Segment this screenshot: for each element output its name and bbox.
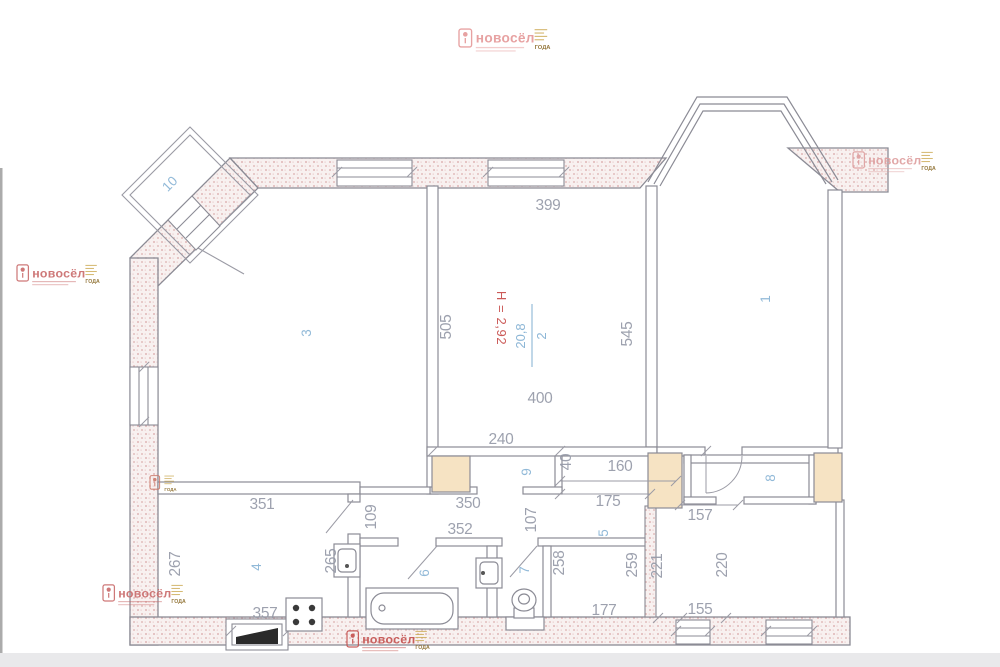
badge-goda-label: ГОДА (535, 45, 552, 51)
award-badge: ГОДА (535, 29, 552, 51)
bay-window-glazing (648, 97, 838, 186)
logo-dot (351, 634, 355, 638)
watermark-tagline-line (118, 601, 162, 602)
dimension-label: 258 (551, 551, 568, 576)
watermark-tagline-line (868, 168, 912, 169)
dimension-label: 545 (619, 322, 636, 347)
dimension-label: 265 (323, 549, 340, 574)
novosel-logo-icon (103, 585, 114, 601)
dimension-label: 175 (596, 493, 621, 510)
dimension-label: 157 (688, 507, 713, 524)
watermark-tagline-line (476, 47, 524, 48)
badge-line (171, 585, 182, 586)
badge-line (921, 155, 930, 156)
badge-goda-label: ГОДА (85, 279, 100, 285)
room-number-label: 8 (763, 474, 778, 482)
washbasin-icon (476, 558, 502, 588)
room2-area-fraction: 20,8 2 (513, 304, 549, 367)
logo-dot (107, 588, 111, 592)
interior-walls (158, 186, 844, 617)
badge-line (535, 29, 548, 30)
room-number-label: 3 (299, 329, 314, 337)
dimension-label: 160 (608, 458, 634, 475)
dimension-label: 107 (523, 508, 540, 533)
dimension-label: 109 (363, 505, 380, 530)
badge-line (164, 478, 171, 479)
room-number-label: 9 (519, 468, 534, 476)
badge-line (535, 39, 544, 40)
watermark: новосёлГОДА (103, 585, 186, 605)
award-badge: ГОДА (921, 152, 936, 172)
badge-line (415, 634, 424, 635)
logo-dot (21, 268, 25, 272)
windows (130, 160, 812, 650)
watermark-brand: новосёл (362, 632, 415, 646)
badge-goda-label: ГОДА (171, 599, 186, 605)
logo-dot (153, 478, 157, 482)
room-number-label: 1 (758, 295, 773, 303)
dimension-label: 352 (448, 521, 473, 538)
room-number-label: 6 (417, 569, 432, 577)
novosel-logo-icon (17, 265, 28, 281)
toilet-icon (506, 589, 544, 630)
watermark-brand: новосёл (476, 31, 535, 46)
badge-line (921, 152, 932, 153)
dimension-label: 267 (167, 552, 184, 577)
badge-goda-label: ГОДА (164, 487, 177, 492)
badge-line (535, 36, 548, 37)
badge-line (85, 271, 96, 272)
logo-dot (857, 155, 861, 159)
watermark-tagline-line (476, 50, 516, 51)
badge-line (164, 483, 171, 484)
dimension-label: 221 (649, 554, 666, 579)
watermark-tagline-line (868, 171, 904, 172)
logo-shield (17, 265, 28, 281)
badge-line (415, 631, 426, 632)
room-number-label: 10 (159, 173, 180, 194)
scan-footer-strip (0, 653, 1000, 667)
watermark-tagline-line (32, 284, 68, 285)
room2-number: 2 (534, 332, 549, 339)
badge-line (171, 591, 182, 592)
logo-dot (463, 32, 468, 37)
watermark-tagline-line (362, 647, 406, 648)
watermark-tagline-line (362, 650, 398, 651)
room-number-label: 7 (517, 566, 532, 574)
scan-left-edge (0, 168, 3, 655)
badge-line (85, 268, 94, 269)
badge-line (171, 594, 180, 595)
room-number-label: 5 (596, 529, 611, 537)
dimension-label: 220 (714, 552, 731, 578)
badge-line (171, 588, 180, 589)
watermark: новосёлГОДА (17, 265, 100, 285)
room-number-labels: 1345678910 (159, 173, 778, 577)
ceiling-height-label: Н = 2,92 (494, 291, 509, 345)
dimension-label: 240 (489, 431, 515, 448)
floor-plan-scan: Н = 2,92 20,8 2 399505545400240401601753… (0, 0, 1000, 667)
dimension-label: 40 (558, 453, 575, 470)
watermark-brand: новосёл (118, 586, 171, 600)
badge-goda-label: ГОДА (921, 166, 936, 172)
watermark: новосёлГОДА (459, 29, 551, 51)
watermark-tagline-line (32, 281, 76, 282)
dimension-label: 155 (688, 601, 713, 618)
watermark-brand: новосёл (868, 153, 921, 167)
dimension-label: 351 (250, 496, 275, 513)
dimension-label: 399 (536, 197, 561, 214)
watermark-brand: новосёл (32, 266, 85, 280)
dimension-label: 350 (456, 495, 482, 512)
award-badge: ГОДА (171, 585, 186, 605)
room-number-label: 4 (249, 563, 264, 571)
badge-line (164, 476, 174, 477)
novosel-logo-icon (459, 29, 472, 47)
dimension-label: 259 (624, 553, 641, 578)
badge-line (85, 274, 94, 275)
logo-shield (103, 585, 114, 601)
badge-line (164, 481, 174, 482)
room2-area-value: 20,8 (513, 323, 528, 348)
award-badge: ГОДА (85, 265, 100, 285)
badge-line (415, 637, 426, 638)
dimension-label: 357 (253, 605, 278, 622)
exterior-walls (130, 148, 888, 645)
badge-goda-label: ГОДА (415, 645, 430, 651)
badge-line (921, 161, 930, 162)
watermark-tagline-line (118, 604, 154, 605)
stove-icon (286, 598, 322, 631)
bathtub-icon (366, 588, 458, 629)
badge-line (85, 265, 96, 266)
badge-line (535, 32, 544, 33)
badge-line (415, 640, 424, 641)
badge-line (921, 158, 932, 159)
dimension-label: 505 (438, 315, 455, 340)
dimension-label: 177 (592, 602, 617, 619)
floor-plan-drawing: Н = 2,92 20,8 2 399505545400240401601753… (0, 0, 1000, 667)
dimension-label: 400 (528, 390, 554, 407)
